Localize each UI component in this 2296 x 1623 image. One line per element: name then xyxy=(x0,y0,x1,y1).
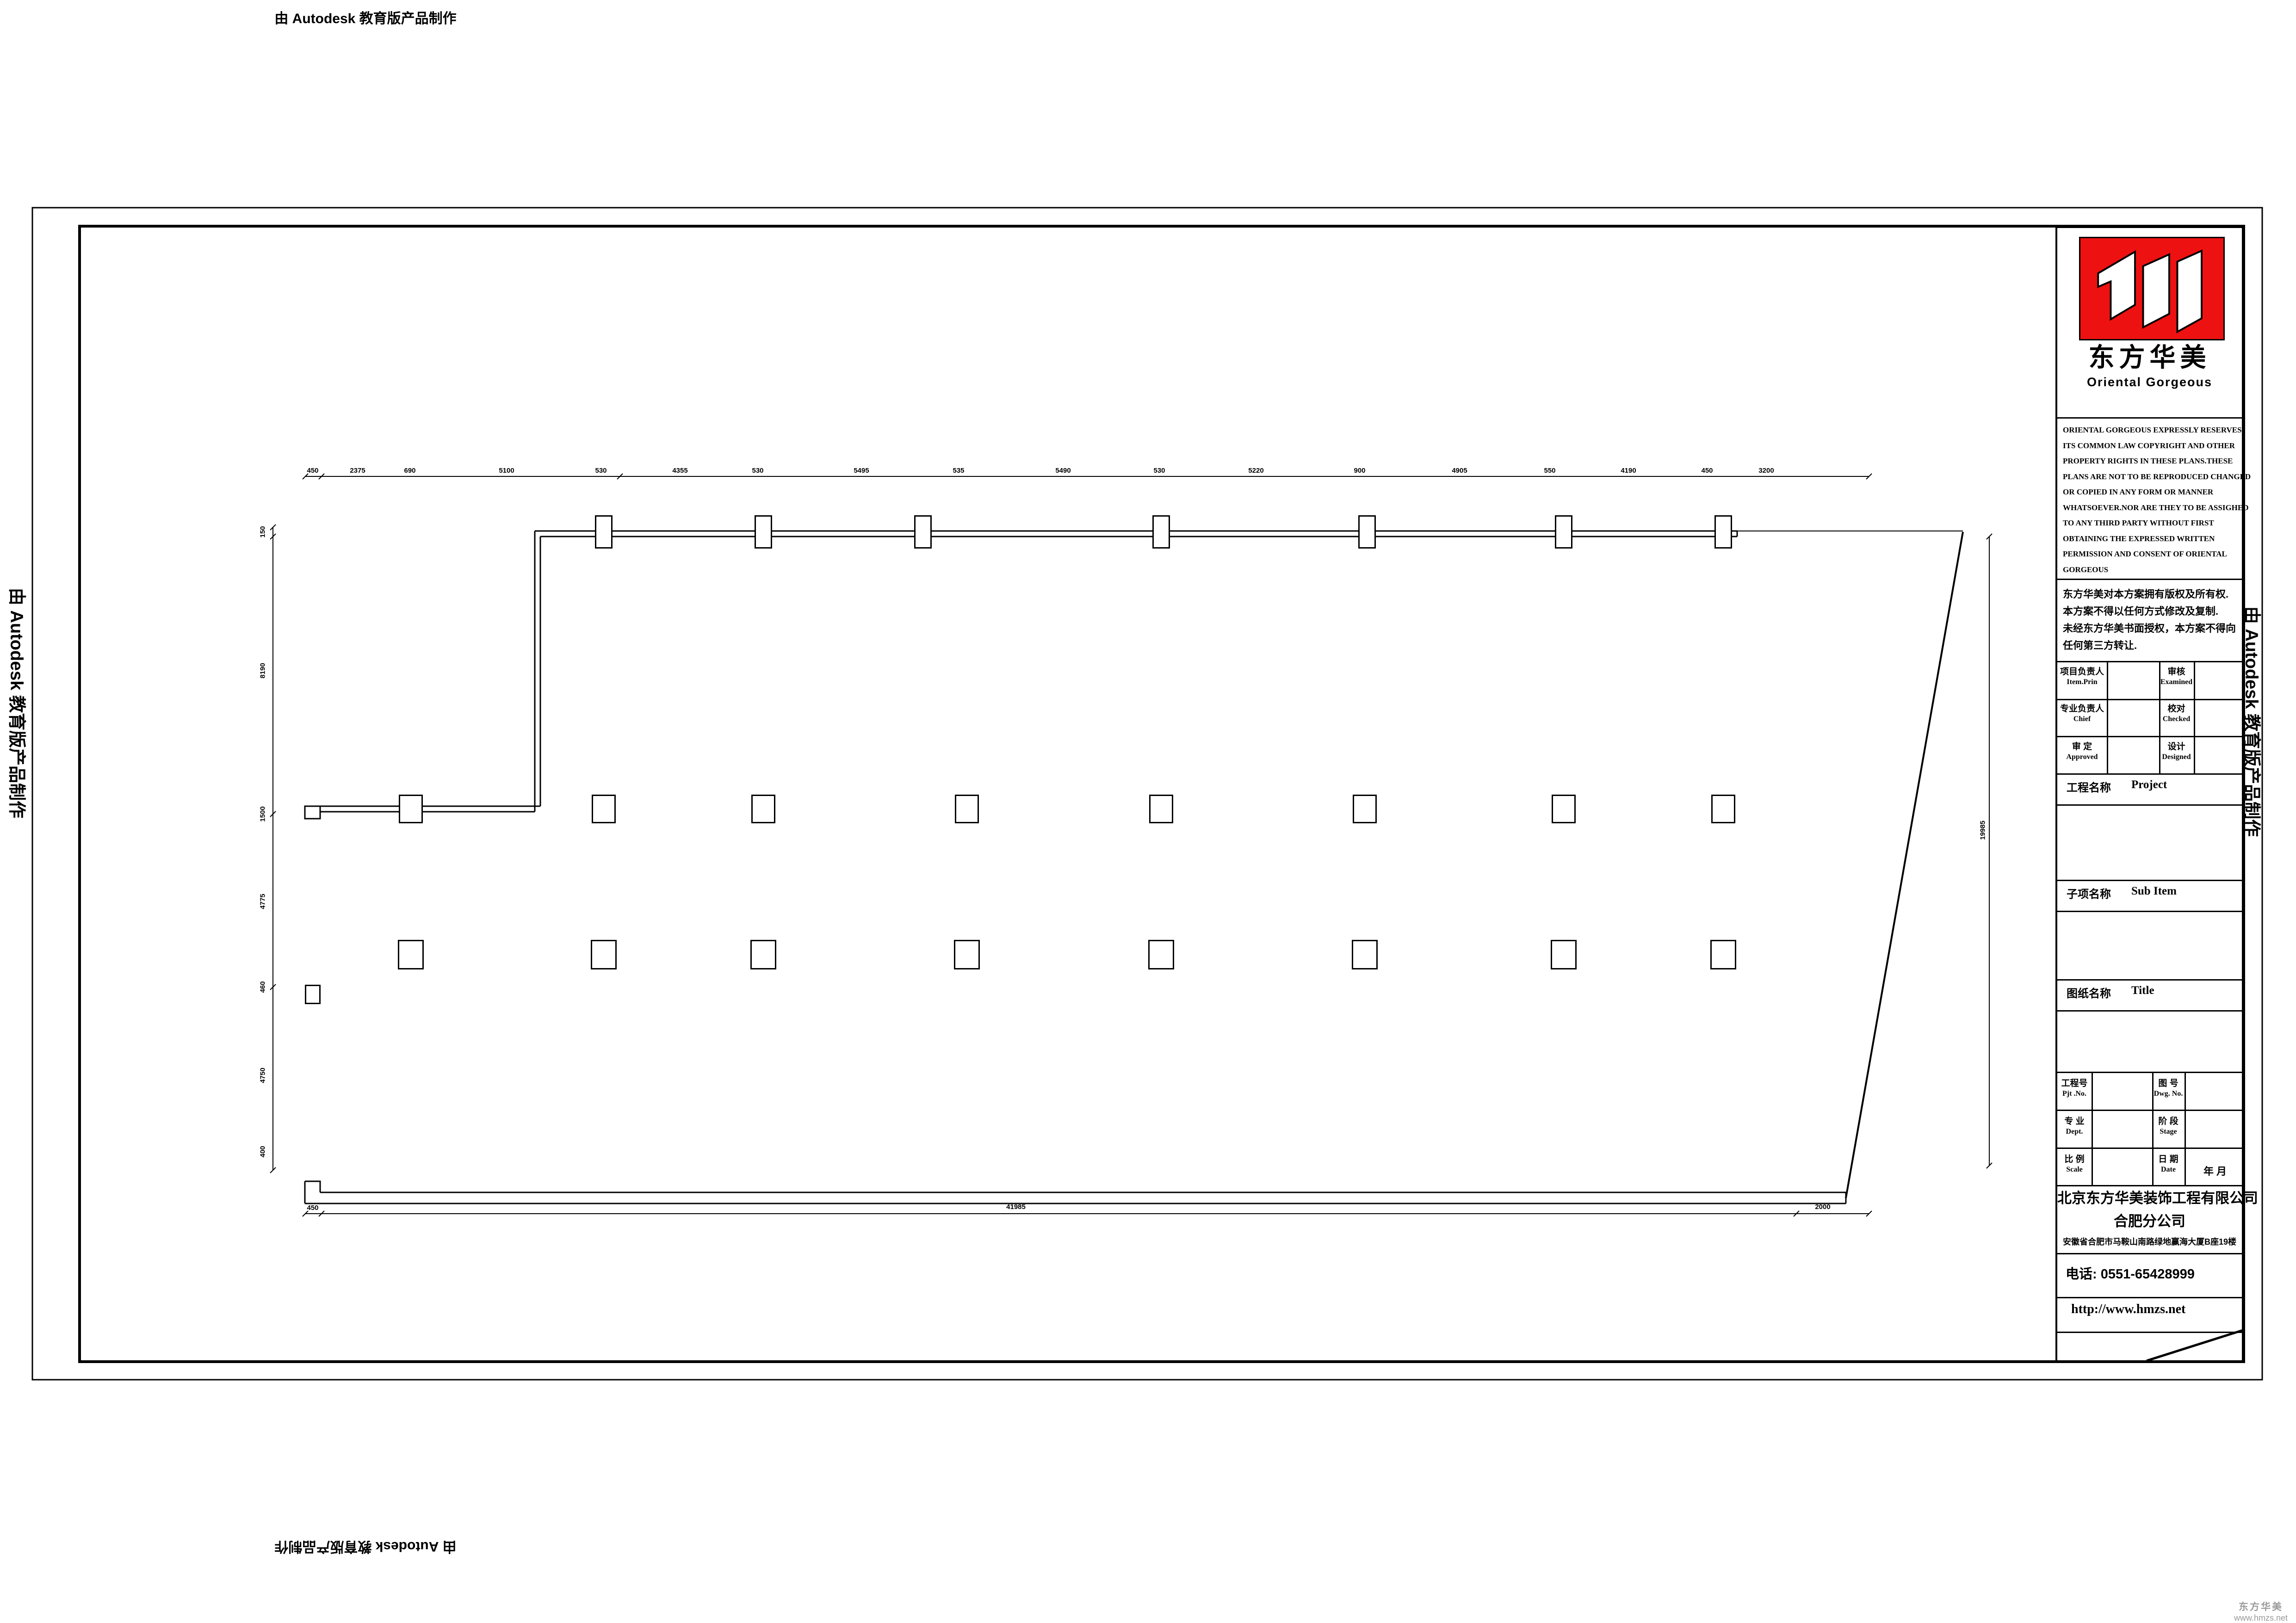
copyright-line: PLANS ARE NOT TO BE REPRODUCED CHANGED xyxy=(2063,469,2241,485)
copyright-line: 未经东方华美书面授权，本方案不得向 xyxy=(2063,620,2241,637)
corner-brand-name: 东方华美 xyxy=(2234,1599,2288,1613)
personnel-label-en: Item.Prin xyxy=(2057,678,2107,687)
personnel-label-en: Approved xyxy=(2057,753,2107,762)
meta-label-cn: 阶 段 xyxy=(2152,1116,2185,1127)
personnel-label-en: Chief xyxy=(2057,715,2107,724)
column xyxy=(750,940,776,969)
company-branch: 合肥分公司 xyxy=(2057,1210,2242,1230)
dimension-label: 8190 xyxy=(259,663,267,678)
dimension-label: 450 xyxy=(307,467,318,475)
meta-cell: 日 期 Date xyxy=(2152,1154,2185,1174)
dimension-label: 4905 xyxy=(1452,467,1467,475)
column xyxy=(591,940,617,969)
meta-label-en: Dwg. No. xyxy=(2152,1089,2185,1098)
dimension-label: 2000 xyxy=(1815,1203,1830,1211)
section-label-cn: 工程名称 xyxy=(2067,778,2111,795)
dimension-label: 4355 xyxy=(672,467,687,475)
section-label-en: Sub Item xyxy=(2131,885,2177,898)
column xyxy=(1152,515,1170,549)
meta-cell: 图 号 Dwg. No. xyxy=(2152,1078,2185,1098)
dimension-label: 530 xyxy=(595,467,606,475)
copyright-line: 本方案不得以任何方式修改及复制. xyxy=(2063,603,2241,620)
meta-label-en: Dept. xyxy=(2057,1127,2092,1136)
personnel-label-cn: 校对 xyxy=(2159,704,2194,715)
column xyxy=(1149,795,1173,823)
copyright-line: OR COPIED IN ANY FORM OR MANNER xyxy=(2063,484,2241,500)
dimension-label: 5100 xyxy=(499,467,514,475)
corner-brand-site: www.hmzs.net xyxy=(2234,1613,2288,1623)
personnel-cell: 项目负责人 Item.Prin xyxy=(2057,666,2107,687)
copyright-chinese: 东方华美对本方案拥有版权及所有权.本方案不得以任何方式修改及复制.未经东方华美书… xyxy=(2063,586,2241,654)
copyright-line: 东方华美对本方案拥有版权及所有权. xyxy=(2063,586,2241,603)
personnel-label-cn: 设计 xyxy=(2159,741,2194,753)
title-block: 东方华美 Oriental Gorgeous ORIENTAL GORGEOUS… xyxy=(2055,226,2244,1362)
meta-cell: 工程号 Pjt .No. xyxy=(2057,1078,2092,1098)
dimension-label: 4750 xyxy=(259,1068,267,1083)
column xyxy=(914,515,932,549)
dimension-label: 530 xyxy=(752,467,763,475)
drawing-sheet: { "watermark": { "text": "由 Autodesk 教育版… xyxy=(0,0,2296,1623)
meta-cell: 专 业 Dept. xyxy=(2057,1116,2092,1136)
section-label-cn: 图纸名称 xyxy=(2067,984,2111,1000)
meta-label-en: Date xyxy=(2152,1165,2185,1174)
meta-label-cn: 工程号 xyxy=(2057,1078,2092,1089)
left-wall xyxy=(535,531,540,812)
dimension-label: 535 xyxy=(953,467,964,475)
dimension-label: 530 xyxy=(1153,467,1165,475)
column xyxy=(1551,940,1577,969)
dimension-label: 4190 xyxy=(1621,467,1636,475)
dimension-label: 5220 xyxy=(1248,467,1263,475)
personnel-cell: 审 定 Approved xyxy=(2057,741,2107,762)
copyright-line: 任何第三方转让. xyxy=(2063,637,2241,654)
copyright-english: ORIENTAL GORGEOUS EXPRESSLY RESERVESITS … xyxy=(2063,422,2241,577)
floor-plan-drawing xyxy=(0,0,2296,1623)
dimension-label: 3200 xyxy=(1758,467,1774,475)
meta-label-cn: 专 业 xyxy=(2057,1116,2092,1127)
company-phone: 电话: 0551-65428999 xyxy=(2066,1263,2195,1283)
personnel-label-cn: 项目负责人 xyxy=(2057,666,2107,678)
column xyxy=(1714,515,1732,549)
copyright-line: ITS COMMON LAW COPYRIGHT AND OTHER xyxy=(2063,438,2241,454)
copyright-line: PERMISSION AND CONSENT OF ORIENTAL xyxy=(2063,546,2241,562)
column xyxy=(1710,940,1736,969)
column xyxy=(1711,795,1735,823)
oriental-gorgeous-logo xyxy=(2079,237,2225,340)
dimension-label: 450 xyxy=(307,1204,318,1212)
logo-english-name: Oriental Gorgeous xyxy=(2057,375,2242,389)
meta-label-cn: 图 号 xyxy=(2152,1078,2185,1089)
personnel-label-en: Designed xyxy=(2159,753,2194,762)
dimension-label: 550 xyxy=(1544,467,1555,475)
personnel-label-cn: 审核 xyxy=(2159,666,2194,678)
column xyxy=(398,940,424,969)
personnel-cell: 专业负责人 Chief xyxy=(2057,704,2107,724)
meta-cell: 阶 段 Stage xyxy=(2152,1116,2185,1136)
meta-label-cn: 比 例 xyxy=(2057,1154,2092,1165)
column xyxy=(1358,515,1376,549)
dimension-label: 5490 xyxy=(1055,467,1071,475)
dimension-label: 900 xyxy=(1354,467,1365,475)
meta-label-en: Stage xyxy=(2152,1127,2185,1136)
column xyxy=(1148,940,1174,969)
dimension-label: 450 xyxy=(1701,467,1713,475)
column xyxy=(399,795,423,823)
personnel-label-cn: 专业负责人 xyxy=(2057,704,2107,715)
dimension-label: 1500 xyxy=(259,806,267,821)
logo-chinese-name: 东方华美 xyxy=(2057,345,2242,370)
copyright-line: OBTAINING THE EXPRESSED WRITTEN xyxy=(2063,531,2241,547)
copyright-line: ORIENTAL GORGEOUS EXPRESSLY RESERVES xyxy=(2063,422,2241,438)
dimension-label: 690 xyxy=(404,467,415,475)
dimension-label: 150 xyxy=(259,526,267,537)
corner-brand: 东方华美 www.hmzs.net xyxy=(2234,1599,2288,1623)
copyright-line: TO ANY THIRD PARTY WITHOUT FIRST xyxy=(2063,515,2241,531)
dimension-label: 5495 xyxy=(854,467,869,475)
copyright-line: PROPERTY RIGHTS IN THESE PLANS.THESE xyxy=(2063,453,2241,469)
column xyxy=(955,795,979,823)
copyright-line: GORGEOUS xyxy=(2063,562,2241,578)
dimension-label: 460 xyxy=(259,981,267,993)
copyright-line: WHATSOEVER.NOR ARE THEY TO BE ASSIGHED xyxy=(2063,500,2241,516)
dimension-label: 19985 xyxy=(1979,821,1987,840)
personnel-label-en: Checked xyxy=(2159,715,2194,724)
company-name: 北京东方华美装饰工程有限公司 xyxy=(2057,1186,2242,1207)
company-address: 安徽省合肥市马鞍山南路绿地赢海大厦B座19楼 xyxy=(2057,1235,2242,1247)
section-label-cn: 子项名称 xyxy=(2067,885,2111,901)
date-placeholder: 年 月 xyxy=(2185,1163,2246,1178)
column xyxy=(1352,940,1378,969)
meta-label-en: Scale xyxy=(2057,1165,2092,1174)
section-label-en: Project xyxy=(2131,778,2167,791)
column xyxy=(751,795,775,823)
inner-frame xyxy=(80,226,2244,1362)
personnel-cell: 审核 Examined xyxy=(2159,666,2194,687)
meta-label-en: Pjt .No. xyxy=(2057,1089,2092,1098)
meta-cell: 比 例 Scale xyxy=(2057,1154,2092,1174)
dimension-label: 400 xyxy=(259,1146,267,1157)
column xyxy=(305,985,321,1004)
meta-label-cn: 日 期 xyxy=(2152,1154,2185,1165)
column xyxy=(1555,515,1572,549)
section-label-en: Title xyxy=(2131,984,2154,997)
dimension-label: 4775 xyxy=(259,894,267,909)
column xyxy=(755,515,772,549)
column xyxy=(592,795,616,823)
slanted-right-wall xyxy=(1846,532,1963,1198)
dimension-label: 41985 xyxy=(1006,1203,1026,1211)
dimension-label: 2375 xyxy=(350,467,365,475)
personnel-cell: 校对 Checked xyxy=(2159,704,2194,724)
column xyxy=(595,515,613,549)
column xyxy=(1552,795,1576,823)
personnel-label-en: Examined xyxy=(2159,678,2194,687)
company-website: http://www.hmzs.net xyxy=(2071,1302,2185,1317)
column xyxy=(954,940,980,969)
column xyxy=(1353,795,1377,823)
personnel-cell: 设计 Designed xyxy=(2159,741,2194,762)
bottom-wall xyxy=(305,1181,1846,1203)
oriental-gorgeous-logo-icon xyxy=(2080,238,2223,339)
personnel-label-cn: 审 定 xyxy=(2057,741,2107,753)
